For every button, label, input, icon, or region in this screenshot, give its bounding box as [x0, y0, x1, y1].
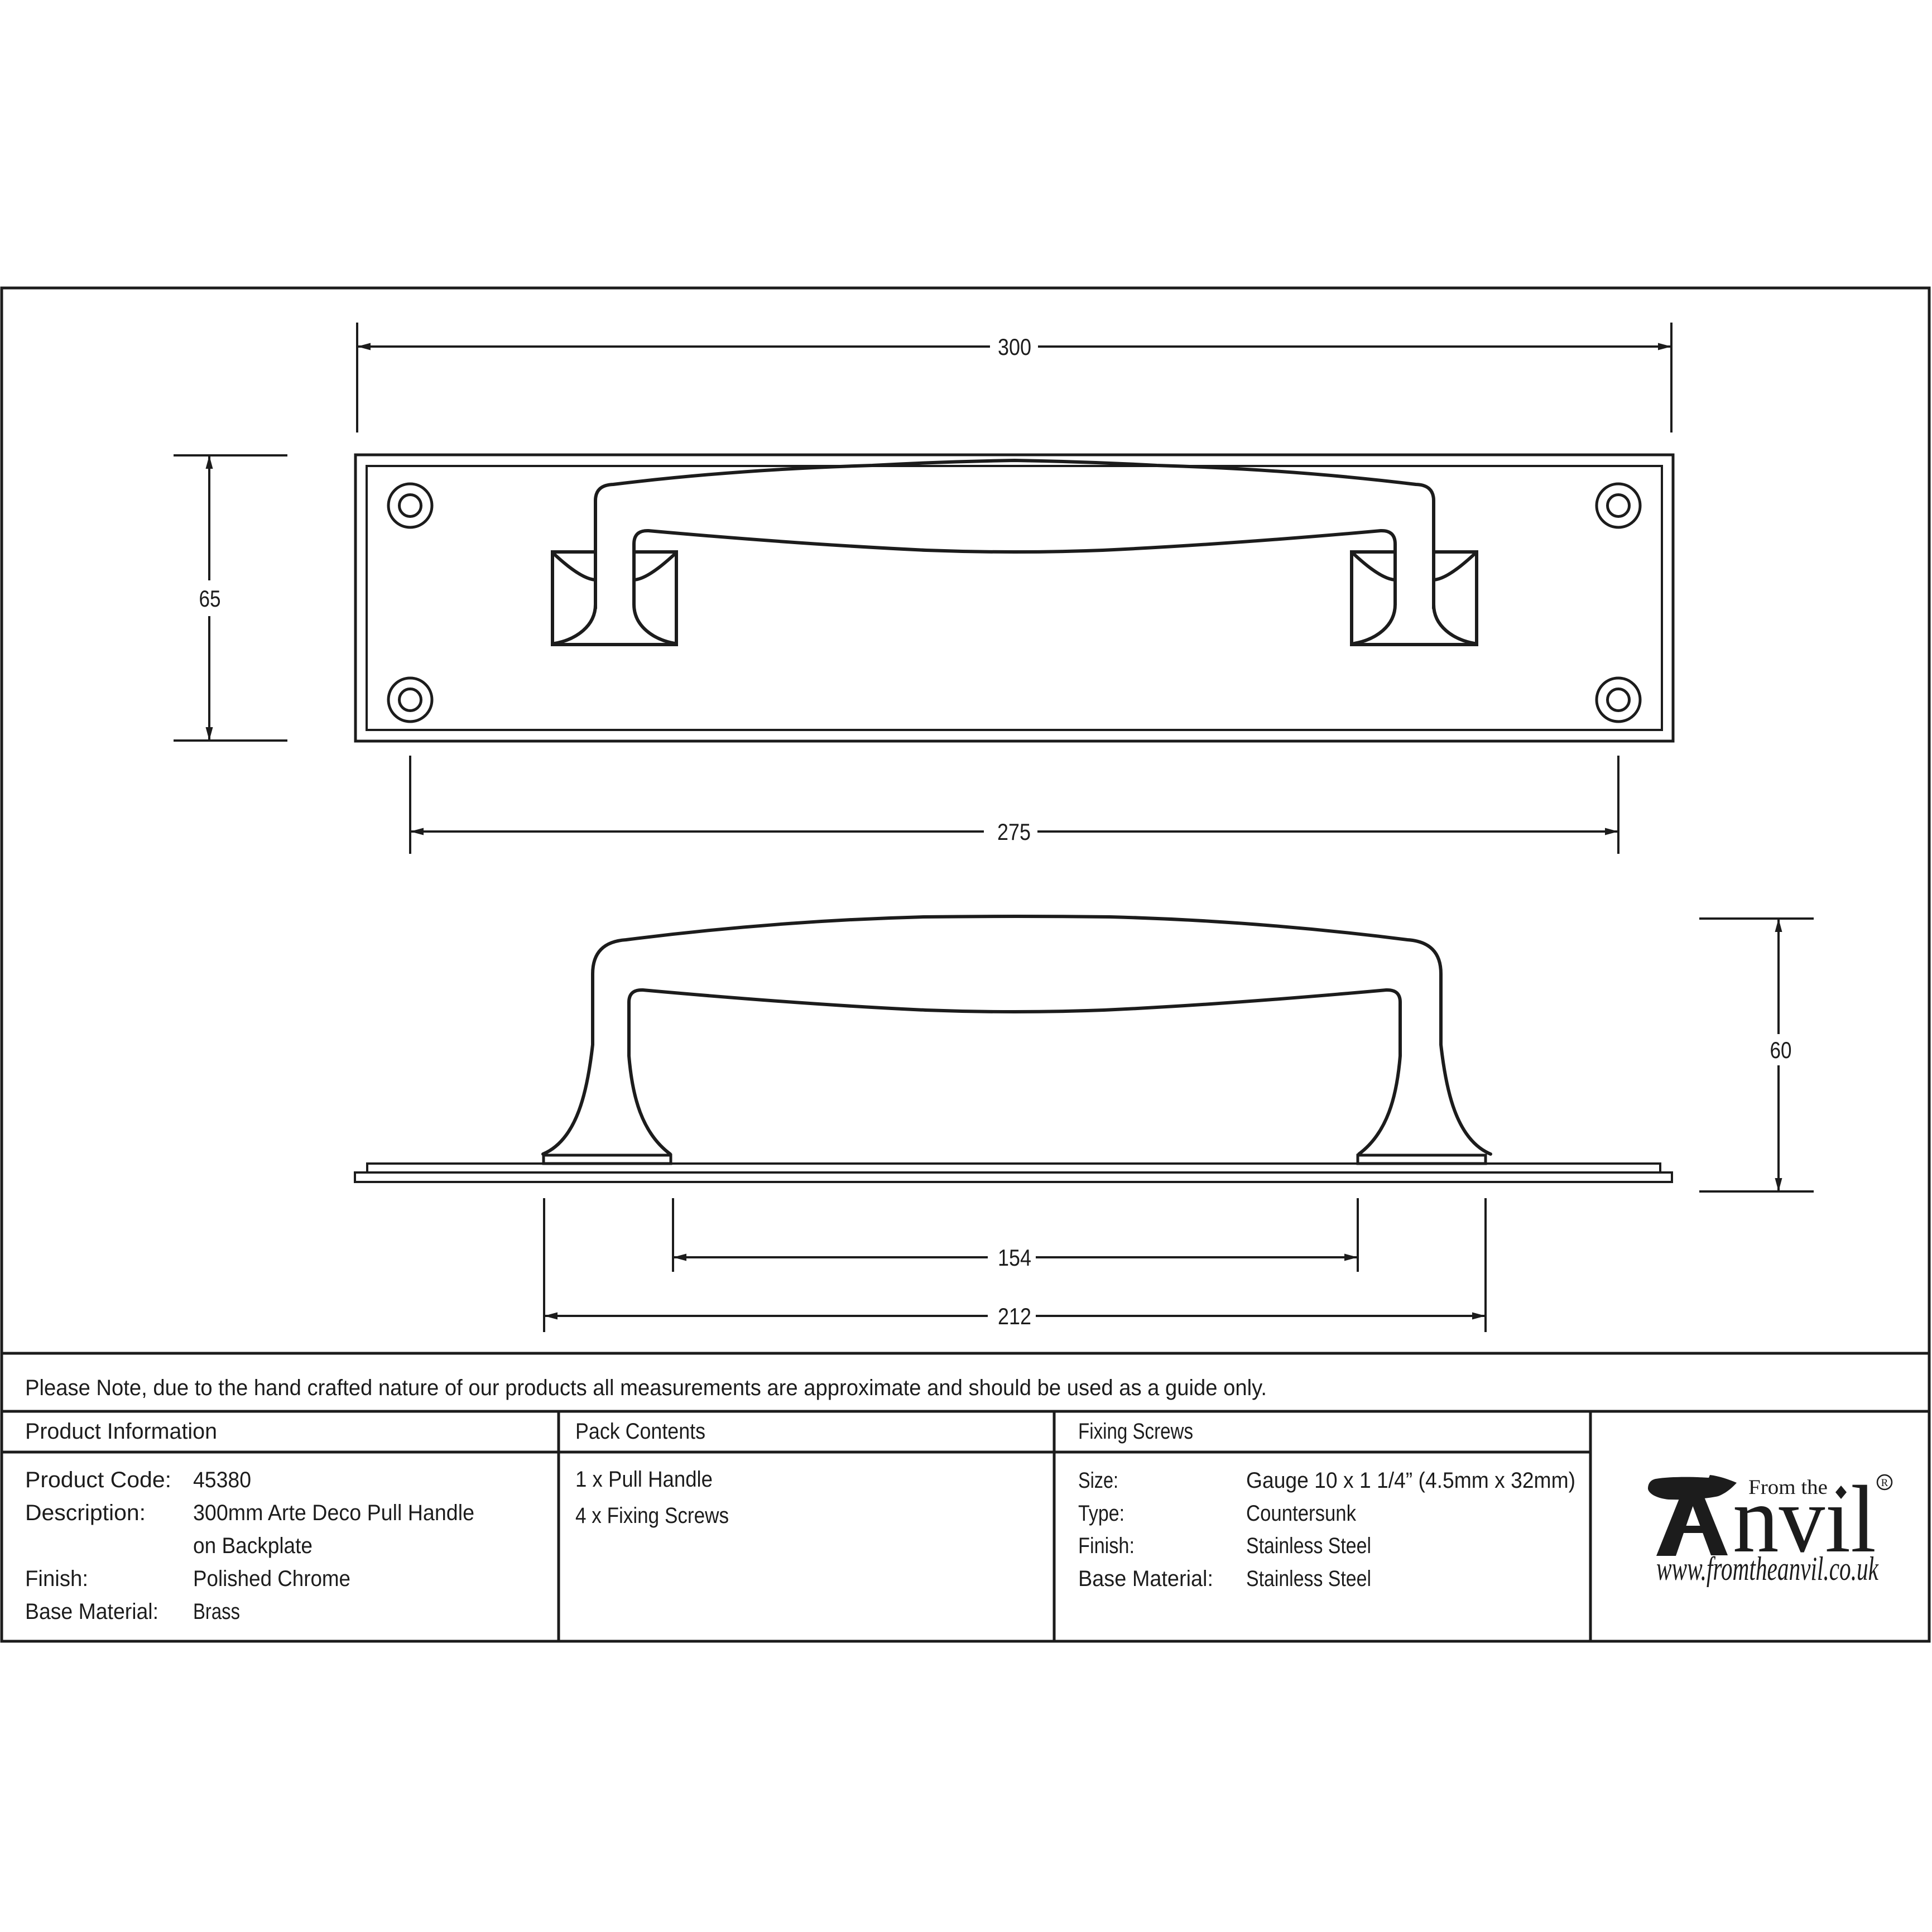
- svg-text:300mm Arte Deco Pull Handle: 300mm Arte Deco Pull Handle: [193, 1501, 474, 1525]
- svg-text:Brass: Brass: [193, 1599, 240, 1624]
- svg-text:Type:: Type:: [1078, 1501, 1124, 1526]
- svg-text:on Backplate: on Backplate: [193, 1534, 313, 1558]
- svg-text:Finish:: Finish:: [25, 1566, 88, 1591]
- svg-text:300: 300: [998, 334, 1031, 360]
- svg-text:Product Code:: Product Code:: [25, 1468, 171, 1492]
- svg-text:4 x Fixing Screws: 4 x Fixing Screws: [575, 1503, 729, 1528]
- svg-text:www.fromtheanvil.co.uk: www.fromtheanvil.co.uk: [1656, 1550, 1879, 1587]
- svg-text:65: 65: [199, 585, 221, 612]
- svg-text:212: 212: [998, 1303, 1031, 1329]
- svg-text:Finish:: Finish:: [1078, 1534, 1135, 1558]
- svg-text:R: R: [1881, 1477, 1888, 1489]
- svg-text:Fixing Screws: Fixing Screws: [1078, 1419, 1193, 1444]
- svg-text:Base Material:: Base Material:: [1078, 1566, 1213, 1591]
- svg-text:Countersunk: Countersunk: [1246, 1501, 1357, 1526]
- svg-text:Pack Contents: Pack Contents: [575, 1419, 705, 1444]
- svg-text:Base Material:: Base Material:: [25, 1599, 158, 1624]
- svg-text:Product Information: Product Information: [25, 1419, 217, 1444]
- svg-text:Size:: Size:: [1078, 1468, 1118, 1493]
- svg-text:Please Note, due to the hand c: Please Note, due to the hand crafted nat…: [25, 1376, 1267, 1400]
- svg-text:Description:: Description:: [25, 1501, 146, 1525]
- svg-text:Polished Chrome: Polished Chrome: [193, 1566, 350, 1591]
- svg-text:Gauge 10 x 1 1/4” (4.5mm x 32m: Gauge 10 x 1 1/4” (4.5mm x 32mm): [1246, 1468, 1575, 1493]
- svg-text:Stainless Steel: Stainless Steel: [1246, 1566, 1371, 1591]
- svg-text:Stainless Steel: Stainless Steel: [1246, 1534, 1371, 1558]
- svg-text:275: 275: [997, 819, 1031, 845]
- svg-text:60: 60: [1770, 1037, 1792, 1063]
- svg-text:45380: 45380: [193, 1468, 251, 1492]
- svg-text:1 x Pull Handle: 1 x Pull Handle: [575, 1467, 713, 1492]
- svg-text:154: 154: [998, 1244, 1031, 1271]
